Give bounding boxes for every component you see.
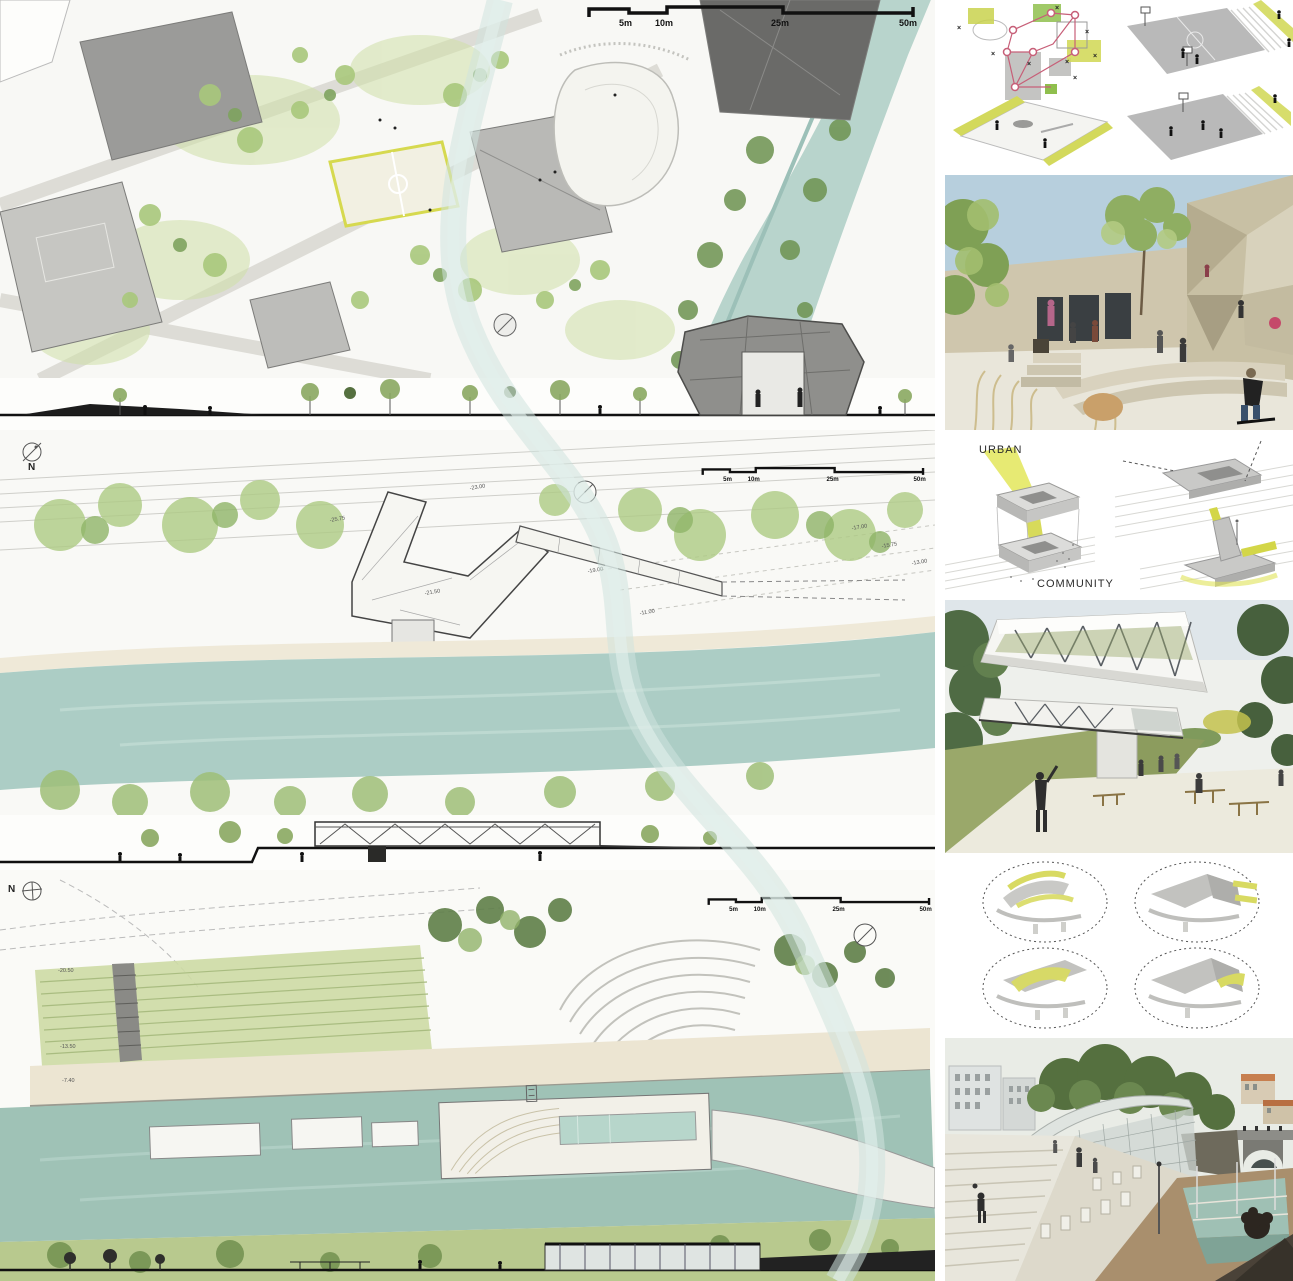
- section-pavilion: [678, 316, 864, 415]
- urban-community-diagram: URBAN COMMUNITY: [945, 437, 1293, 595]
- riverfront-render-image: [945, 1038, 1293, 1281]
- scale-label: 5m: [729, 906, 738, 913]
- community-label: COMMUNITY: [1037, 578, 1114, 590]
- scale-bar-glyph: [700, 466, 928, 476]
- north-arrow: N: [8, 438, 48, 480]
- compass-circle: [854, 924, 876, 946]
- presentation-board: 5m 10m 25m 50m: [0, 0, 1293, 1281]
- scale-label: 50m: [899, 18, 917, 28]
- massing-option-diagrams: [945, 858, 1293, 1035]
- riverfront-render: [945, 1038, 1293, 1281]
- concept-diagram-drawing: URBAN COMMUNITY: [945, 437, 1293, 595]
- ball-2: [973, 1184, 978, 1189]
- scale-bar-glyph: [706, 896, 934, 906]
- riverfront-plan-drawing: -20.50 -13.50 -7.40: [0, 870, 935, 1281]
- svg-text:×: ×: [991, 51, 995, 58]
- site-plan-drawing: [0, 0, 935, 430]
- north-label: N: [28, 462, 35, 473]
- ball: [1269, 317, 1281, 329]
- bridge-building-render: [945, 600, 1293, 853]
- right-rail: ××× ××× ××: [945, 0, 1293, 1281]
- compass-circle: [494, 314, 516, 336]
- climbing-wall: [1187, 175, 1293, 380]
- svg-text:×: ×: [1027, 61, 1031, 68]
- program-diagram-drawing: ××× ××× ××: [945, 0, 1293, 170]
- svg-text:-20.50: -20.50: [58, 968, 74, 974]
- svg-text:-13.50: -13.50: [60, 1044, 76, 1050]
- bridge-render-image: [945, 600, 1293, 853]
- compass-circle: [574, 481, 596, 503]
- courtyard-render-image: [945, 175, 1293, 430]
- svg-text:×: ×: [1065, 59, 1069, 66]
- pier: [1097, 730, 1137, 778]
- scale-label: 25m: [826, 476, 838, 483]
- scale-label: 10m: [754, 906, 766, 913]
- scale-label: 10m: [748, 476, 760, 483]
- scale-label: 25m: [771, 18, 789, 28]
- riverfront-plan-panel: -20.50 -13.50 -7.40: [0, 870, 935, 1281]
- svg-text:×: ×: [1085, 29, 1089, 36]
- scale-bar: 5m 10m 25m 50m: [585, 4, 920, 32]
- svg-text:-7.40: -7.40: [62, 1078, 75, 1084]
- scale-label: 50m: [914, 476, 926, 483]
- scale-bar: 5m 10m 25m 50m: [706, 896, 934, 915]
- section-strip-2: [0, 815, 935, 870]
- urban-label: URBAN: [979, 444, 1023, 456]
- scale-bar-glyph: [585, 4, 920, 18]
- stroller: [1033, 339, 1049, 353]
- scale-label: 10m: [655, 18, 673, 28]
- section-pavilion: [545, 1244, 760, 1270]
- child-head: [1083, 393, 1123, 421]
- scale-label: 25m: [832, 906, 844, 913]
- scale-label: 5m: [619, 18, 632, 28]
- svg-text:×: ×: [1073, 75, 1077, 82]
- massing-diagram-drawing: [945, 858, 1293, 1035]
- courtyard-render: [945, 175, 1293, 430]
- scale-label: 5m: [723, 476, 732, 483]
- svg-text:×: ×: [1093, 53, 1097, 60]
- program-network-diagrams: ××× ××× ××: [945, 0, 1293, 170]
- north-arrow: N: [2, 876, 42, 918]
- svg-text:×: ×: [1055, 5, 1059, 12]
- building-plan-drawing: -25.75 -23.00 -21.50 -19.00 -17.00 -15.7…: [0, 430, 935, 870]
- site-plan-panel: 5m 10m 25m 50m: [0, 0, 935, 430]
- scale-bar: 5m 10m 25m 50m: [700, 466, 928, 485]
- scale-label: 50m: [920, 906, 932, 913]
- building-plan-panel: -25.75 -23.00 -21.50 -19.00 -17.00 -15.7…: [0, 430, 935, 870]
- svg-text:×: ×: [957, 25, 961, 32]
- north-label: N: [8, 884, 15, 895]
